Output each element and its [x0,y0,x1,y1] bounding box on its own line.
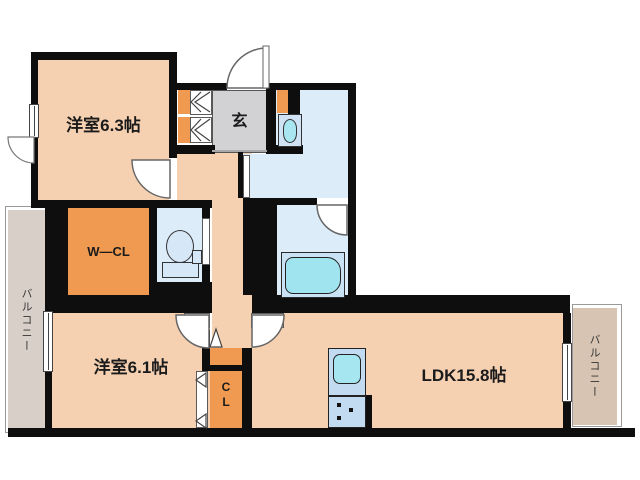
walk-in-closet-label: W―CL [68,243,149,260]
closet-label-line2: L [222,395,229,410]
ldk-door-swing-icon [252,315,284,347]
entrance-door-swing-icon [227,48,267,88]
closet-label: C L [212,376,240,414]
door-symbols-overlay [0,0,640,480]
entrance-door-leaf [263,46,269,88]
bedroom-b-label: 洋室6.1帖 [52,354,210,376]
casement-window-swing-icon [8,137,34,163]
bedroom-b-door-swing-icon [176,315,209,348]
bedroom-a-label: 洋室6.3帖 [38,112,169,134]
balcony-right-label: バルコニー [583,314,605,418]
balcony-left-label: バルコニー [15,268,37,372]
folding-door-icon [196,414,206,428]
closet-label-line1: C [222,380,231,395]
ldk-label: LDK15.8帖 [364,362,564,384]
entrance-label: 玄 [212,108,267,130]
bath-door-swing-icon [317,205,347,235]
floor-plan-canvas: 洋室6.3帖 洋室6.1帖 LDK15.8帖 玄 W―CL C L バルコニー … [0,0,640,480]
door-direction-triangle [210,329,222,347]
bedroom-a-door-swing-icon [132,160,170,198]
